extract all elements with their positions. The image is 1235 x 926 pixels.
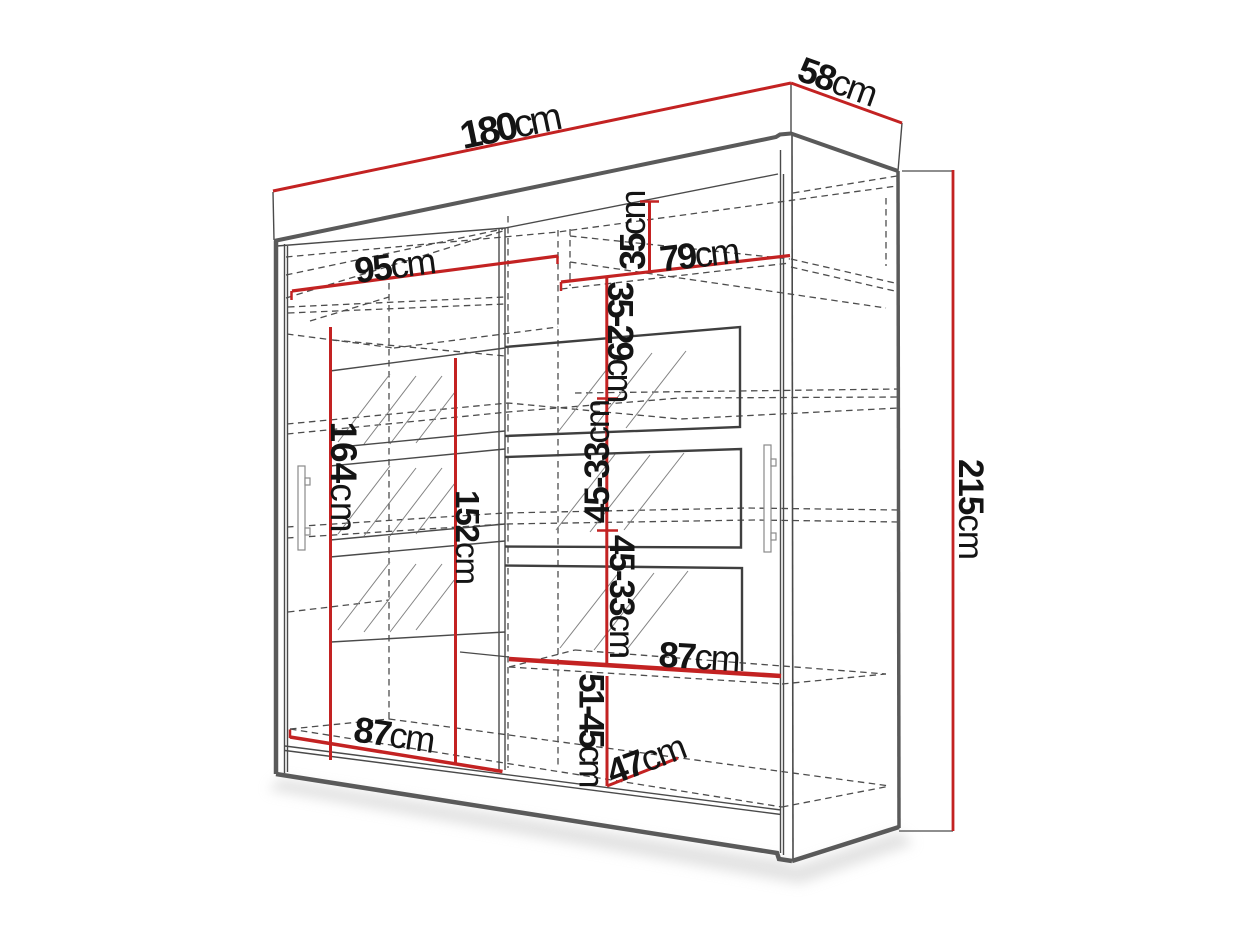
svg-text:87cm: 87cm — [658, 634, 740, 680]
svg-text:51-45cm: 51-45cm — [572, 673, 611, 786]
svg-text:164cm: 164cm — [323, 421, 364, 532]
svg-text:35-29cm: 35-29cm — [600, 281, 641, 401]
svg-text:35cm: 35cm — [612, 191, 653, 270]
svg-text:45-33cm: 45-33cm — [578, 401, 617, 523]
svg-text:215cm: 215cm — [951, 459, 990, 559]
svg-text:45-33cm: 45-33cm — [602, 535, 641, 657]
svg-text:152cm: 152cm — [449, 490, 486, 584]
